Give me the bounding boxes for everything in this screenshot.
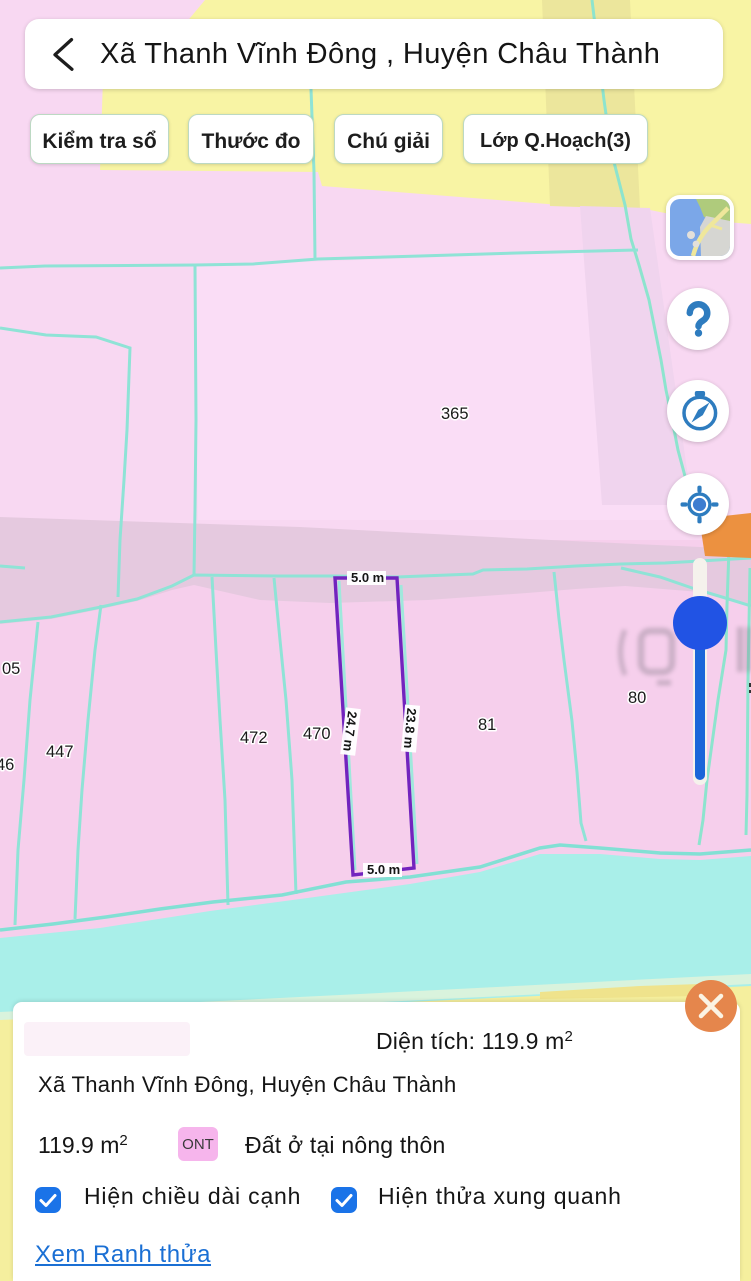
svg-text:80: 80 [628, 689, 646, 707]
svg-text:365: 365 [441, 405, 469, 423]
svg-text:447: 447 [46, 743, 74, 761]
svg-text:5.0 m: 5.0 m [367, 862, 400, 877]
svg-text:472: 472 [240, 729, 268, 747]
svg-text:5.0 m: 5.0 m [351, 570, 384, 585]
svg-text:46: 46 [0, 756, 14, 774]
svg-text:05: 05 [2, 660, 20, 678]
svg-text:470: 470 [303, 725, 331, 743]
svg-text:81: 81 [478, 716, 496, 734]
